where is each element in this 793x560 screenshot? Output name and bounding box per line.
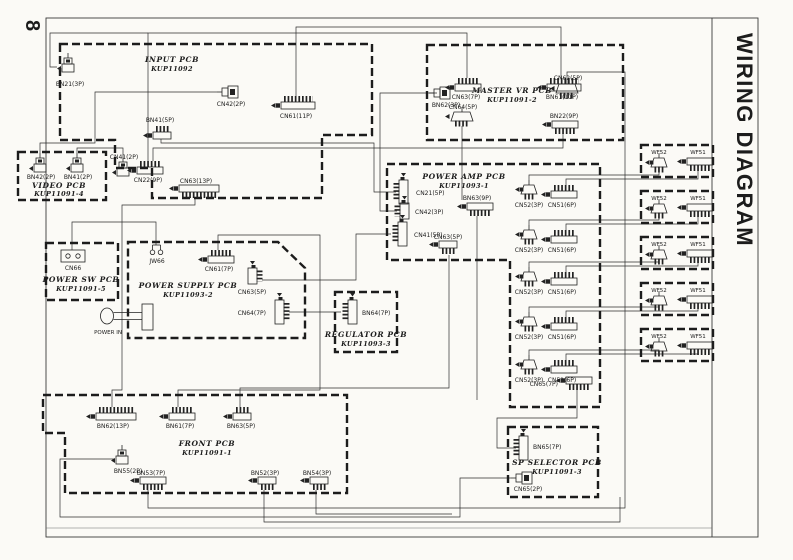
connector-label: BN61(11P) [546,94,578,101]
jumper-wire-icon [150,245,163,255]
comb-connector-icon [198,253,234,263]
connector-label: CN61(7P) [205,266,233,273]
connector-label: BN54(3P) [303,470,331,477]
plug-connector-icon [515,312,537,329]
wire [112,198,195,407]
connector-label: CN51(6P) [548,289,576,296]
connector-label: BN61(7P) [166,423,194,430]
connector-cn51-row1: CN51(6P) [541,188,577,209]
switch-icon [61,250,85,262]
connector-label: BN63(5P) [227,423,255,430]
connector-label: CN52(3P) [515,334,543,341]
connector-cn51-row2: CN51(6P) [541,233,577,254]
pcb-name: SP SELECTOR PCB [512,458,602,467]
connector-bn65-sp: BN65(7P) [517,429,562,460]
connector-label: BN53(7P) [137,470,165,477]
connector-cn62-master: CN62(5P) [550,75,582,96]
connector-label: CN63(7P) [452,94,480,101]
connector-label: BN63(9P) [463,195,491,202]
connector-label: CN51(6P) [548,247,576,254]
connector-label: CN63(5P) [238,289,266,296]
connector-label: CN21(5P) [416,190,444,197]
pcb-model: KUP11093-1 [438,182,489,190]
wire [529,350,659,356]
connector-label: CN42(2P) [217,101,245,108]
pcb-name: INPUT PCB [144,55,199,64]
comb-connector-icon [300,477,328,487]
scanned-manual-page: 8 WIRING DIAGRAM [0,0,793,560]
pcb-model: KUP11091-5 [55,285,106,293]
pcb-name: FRONT PCB [178,439,236,448]
plug-connector-icon [511,472,532,484]
page-frame [46,18,758,537]
connector-label: BN64(7P) [362,310,390,317]
side-connector-icon [346,293,358,324]
connector-cn52-row1: CN52(3P) [515,180,543,209]
connector-label: JW66 [148,258,165,265]
power-in-label: POWER IN [94,330,122,336]
connector-label: BN62(13P) [97,423,129,430]
connector-bn64-regulator: BN64(7P) [346,293,391,324]
connector-cn51-row3: CN51(6P) [541,275,577,296]
connector-cn64-master: CN64(5P) [445,104,477,124]
wf51-label: WF51 [690,288,706,294]
pcb-model: KUP11091-2 [486,96,537,104]
plug-connector-icon [66,153,83,172]
connector-label: BN52(3P) [251,470,279,477]
pcb-model: KUP11093-3 [340,340,391,348]
plug-connector-icon [111,445,128,464]
connector-cn63-amp: CN63(5P) [429,234,462,251]
video-pcb: VIDEO PCB KUP11091-4 BN42(2P) BN41(2P) [18,152,106,200]
speaker-unit-box-3: WF52 WF51 [641,237,713,269]
comb-connector-icon [677,342,713,352]
wire [566,263,698,272]
connector-bn62-front: BN62(13P) [86,410,136,430]
power-plug-icon [101,308,143,324]
comb-connector-icon [541,188,577,198]
connector-label: CN51(6P) [548,202,576,209]
connector-label: CN61(11P) [280,113,312,120]
master-vr-pcb: MASTER VR PCB KUP11091-2 CN63(7P) BN61(1… [427,45,623,140]
comb-connector-icon [248,477,276,487]
connector-label: CN65(2P) [514,486,542,493]
connector-bn52-front: BN52(3P) [248,470,279,487]
comb-connector-icon [541,233,577,243]
wire [178,235,320,407]
wire [148,33,467,161]
connector-label: CN22(9P) [134,177,162,184]
connector-bn22-master: BN22(9P) [542,113,578,131]
pcb-name: VIDEO PCB [32,181,86,190]
sp-selector-pcb: SP SELECTOR PCB KUP11091-3 BN65(7P) CN65… [508,427,602,497]
wire [566,354,698,360]
connector-cn41-amp: CN41(5P) [396,215,443,246]
comb-connector-icon [541,320,577,330]
power-amp-pcb: POWER AMP PCB KUP11093-1 CN21(5P) CN42(3… [387,164,600,407]
comb-connector-icon [542,121,578,131]
connector-label: BN42(2P) [27,174,55,181]
wire [262,234,391,280]
connector-label: CN62(5P) [554,75,582,82]
connector-label: CN63(13P) [180,178,212,185]
connector-cn51-row4: CN51(6P) [541,320,577,341]
connector-cn52-row3: CN52(3P) [515,267,543,296]
connector-label: CN52(3P) [515,247,543,254]
input-pcb: INPUT PCB KUP11092 BN21(3P) CN42(2P) CN6… [56,44,372,198]
plug-connector-icon [515,267,537,284]
speaker-unit-box-1: WF52 WF51 [641,145,713,177]
connector-label: CN66 [65,265,81,272]
connector-bn63-front: BN63(5P) [223,410,255,430]
connector-label: CN65(7P) [530,381,558,388]
wf51-label: WF51 [690,150,706,156]
plug-connector-icon [515,355,537,372]
comb-connector-icon [169,185,219,195]
comb-connector-icon [677,250,713,260]
connector-label: CN63(5P) [434,234,462,241]
comb-connector-icon [537,81,581,91]
connector-label: BN41(5P) [146,117,174,124]
wire [153,134,563,161]
comb-connector-icon [677,158,713,168]
speaker-unit-box-2: WF52 WF51 [641,191,713,223]
wf51-label: WF51 [690,334,706,340]
side-connector-icon [396,215,408,246]
plug-connector-icon [515,180,537,197]
connector-cn66: CN66 [61,250,85,272]
connector-cn52-row2: CN52(3P) [515,225,543,254]
connector-label: CN51(6P) [548,334,576,341]
connector-label: CN41(2P) [110,154,138,161]
pcb-name: POWER SW PCB [42,275,120,284]
comb-connector-icon [429,241,457,251]
pcb-model: KUP11091-1 [181,449,232,457]
connector-label: CN42(3P) [415,209,443,216]
side-connector-icon [275,293,287,324]
comb-connector-icon [86,410,136,420]
wire [50,33,148,67]
comb-connector-icon [677,296,713,306]
wiring [40,27,698,522]
connector-cn61: CN61(11P) [271,99,315,120]
comb-connector-icon [143,129,171,139]
comb-connector-icon [159,410,195,420]
pcb-name: REGULATOR PCB [324,330,407,339]
connector-bn41-video: BN41(2P) [64,153,92,181]
comb-connector-icon [130,477,166,487]
comb-connector-icon [677,204,713,214]
side-connector-icon [248,261,260,284]
page-number: 8 [21,20,43,31]
wire [40,92,217,153]
pcb-model: KUP11093-2 [162,291,213,299]
connector-label: CN64(7P) [238,310,266,317]
plug-connector-icon [217,86,238,98]
connector-jw66: JW66 [148,245,165,265]
connector-label: CN52(3P) [515,289,543,296]
connector-cn42: CN42(2P) [217,86,245,108]
page-border [46,18,758,537]
connector-cn52-row4: CN52(3P) [515,312,543,341]
wiring-diagram: 8 WIRING DIAGRAM [0,0,793,560]
speaker-unit-box-5: WF52 WF51 [641,329,713,361]
connector-bn61-front: BN61(7P) [159,410,195,430]
side-connector-icon [517,429,529,460]
comb-connector-icon [457,203,493,213]
power-socket-icon [142,304,153,330]
connector-cn61-supply: CN61(7P) [198,253,234,273]
connector-label: BN22(9P) [550,113,578,120]
connector-bn54-front: BN54(3P) [300,470,331,487]
connector-label: BN41(2P) [64,174,92,181]
regulator-pcb: REGULATOR PCB KUP11093-3 BN64(7P) [324,292,407,352]
power-sw-pcb: POWER SW PCB KUP11091-5 CN66 [42,243,120,300]
plug-connector-icon [515,225,537,242]
front-pcb: FRONT PCB KUP11091-1 BN62(13P) BN61(7P) … [43,395,347,493]
speaker-unit-box-4: WF52 WF51 [641,283,713,315]
pcb-model: KUP11091-4 [33,190,84,198]
wire [72,222,156,250]
comb-connector-icon [541,363,577,373]
connector-bn63-amp: BN63(9P) [457,195,493,213]
connector-label: CN64(5P) [449,104,477,111]
plug-connector-icon [29,153,46,172]
power-supply-pcb: POWER SUPPLY PCB KUP11093-2 JW66 CN61(7P… [94,242,305,338]
wf51-label: WF51 [690,242,706,248]
page-title: WIRING DIAGRAM [732,33,757,247]
pcb-name: POWER AMP PCB [421,172,505,181]
power-inlet: POWER IN [94,304,153,336]
connector-label: CN52(3P) [515,202,543,209]
connector-cn63-supply: CN63(5P) [238,261,266,296]
plug-connector-icon [429,87,450,99]
connector-cn63-input: CN63(13P) [169,178,219,195]
power-amp-pcb-outline [387,164,600,407]
side-connector-icon [397,173,409,204]
connector-cn52-row5: CN52(3P) [515,355,543,384]
connector-cn64-supply: CN64(7P) [238,293,287,324]
pcb-model: KUP11092 [150,65,193,73]
pcb-name: POWER SUPPLY PCB [138,281,238,290]
comb-connector-icon [223,410,251,420]
pcb-model: KUP11091-3 [531,468,582,476]
connector-bn42-video: BN42(2P) [27,153,55,181]
comb-connector-icon [271,99,315,109]
comb-connector-icon [541,275,577,285]
wf51-label: WF51 [690,196,706,202]
connector-label: BN21(3P) [56,81,84,88]
connector-label: BN65(7P) [533,444,561,451]
